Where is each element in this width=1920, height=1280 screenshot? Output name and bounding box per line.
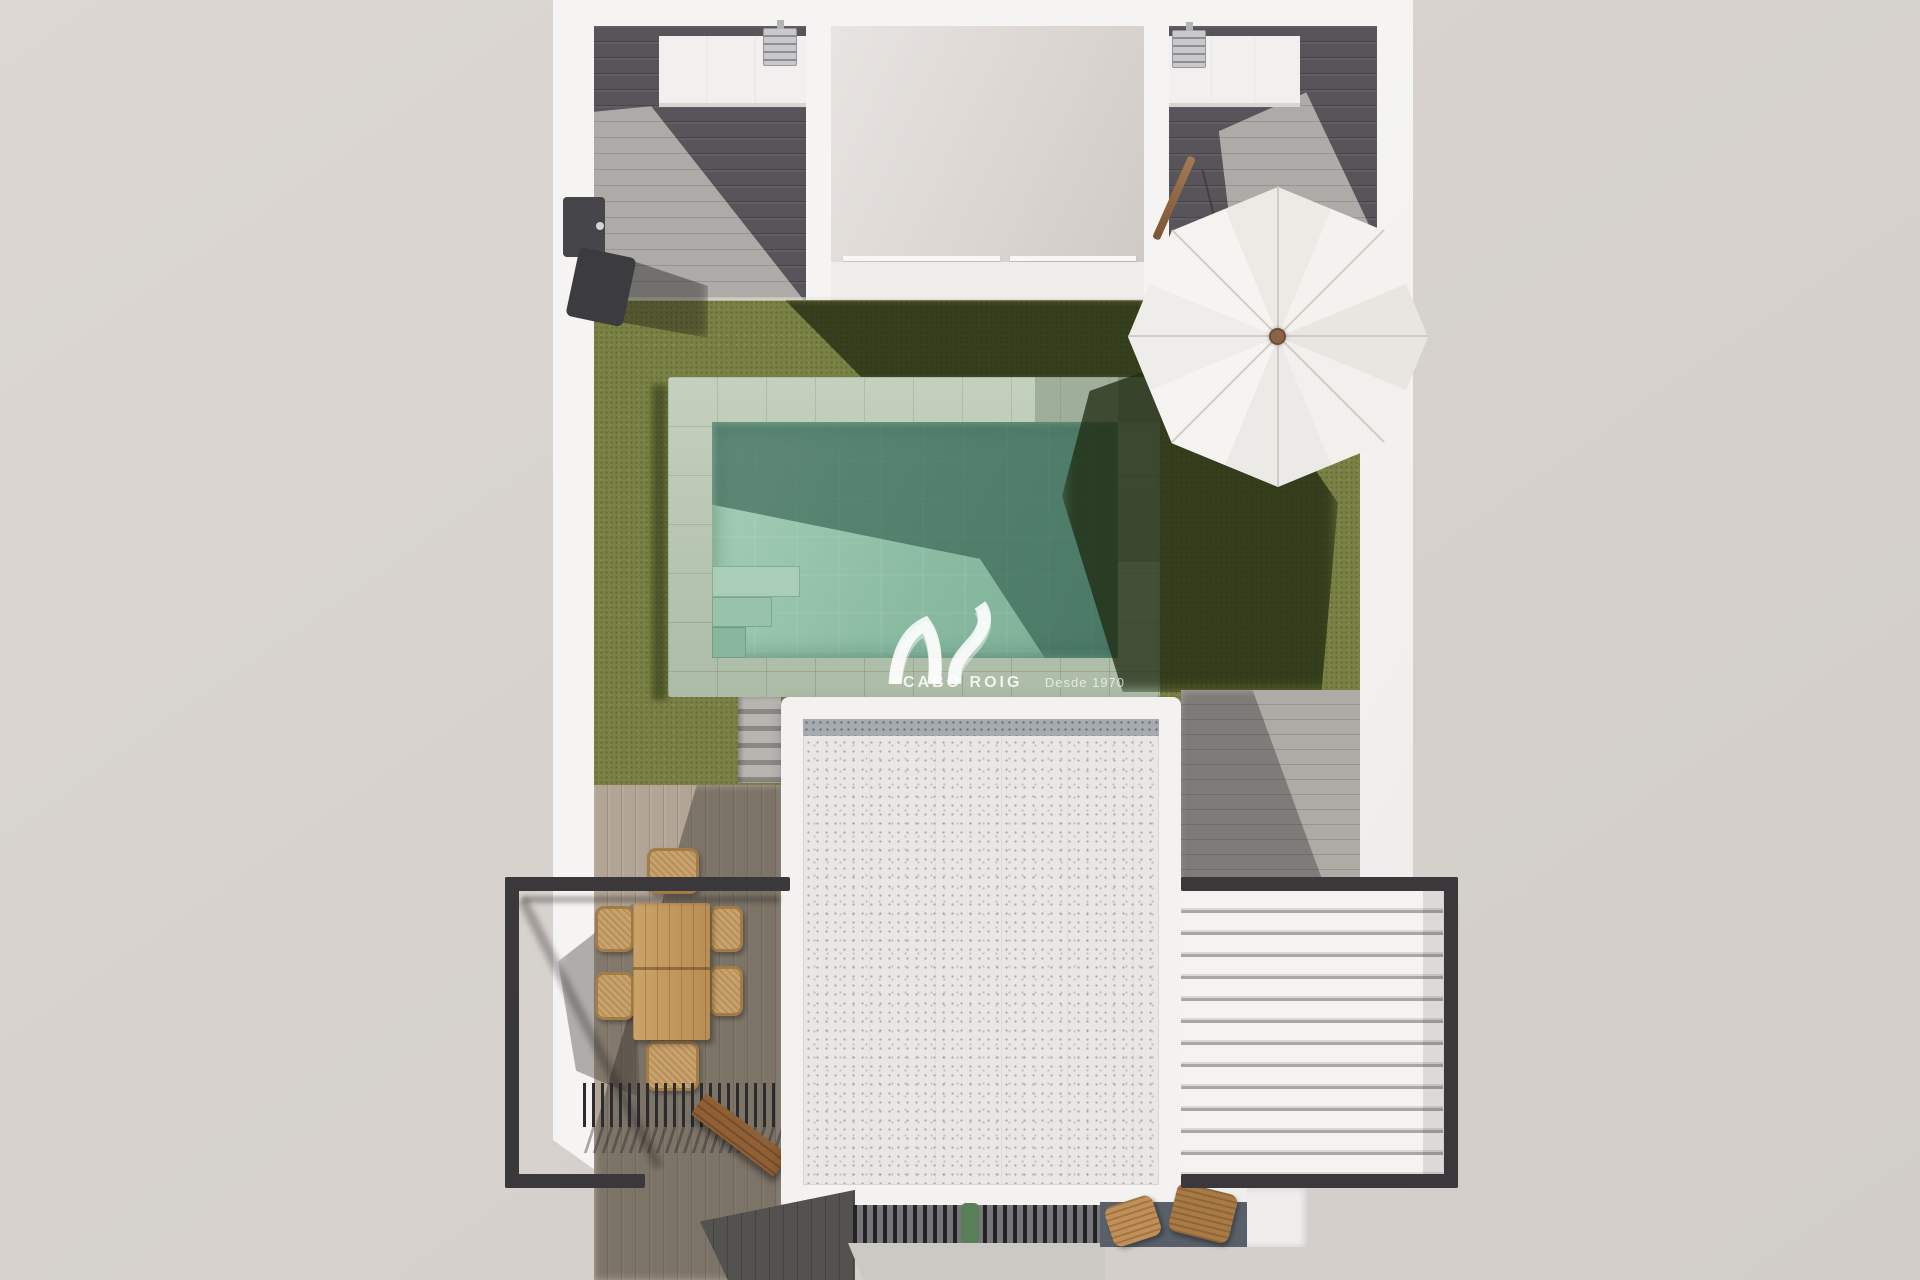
pool-edge-shadow: [652, 385, 667, 700]
louvered-pergola: [1181, 891, 1443, 1174]
pool-step: [712, 627, 746, 658]
dining-chair: [595, 972, 634, 1020]
glass-parapet-right: [1010, 256, 1136, 261]
railing-right: [1181, 1174, 1458, 1188]
railing-left: [505, 1174, 645, 1188]
garden-stairs: [738, 697, 781, 783]
table-seam: [633, 967, 710, 970]
ac-unit-icon: [763, 28, 797, 66]
glass-parapet-left: [843, 256, 1000, 261]
dining-chair: [709, 966, 743, 1016]
railing-shadow: [522, 896, 780, 903]
pool-step: [712, 597, 772, 627]
ac-unit-icon: [1172, 30, 1206, 68]
parasol-hub: [1269, 328, 1286, 345]
pool-step: [712, 566, 800, 597]
dining-chair: [709, 906, 743, 952]
potted-plant: [961, 1203, 979, 1245]
main-roof: [781, 697, 1181, 1207]
aerial-villa-render: CABO ROIG Desde 1970: [0, 0, 1920, 1280]
courtyard-terrace: [831, 26, 1144, 262]
dining-table: [633, 903, 710, 1040]
railing-right: [1444, 877, 1458, 1188]
wall-corner-block: [1247, 1188, 1310, 1247]
dining-chair: [595, 906, 634, 952]
railing-right: [1181, 877, 1458, 891]
roof-gray-band: [803, 719, 1159, 736]
roof-gravel-field: [803, 719, 1159, 1185]
concrete-apron: [848, 1243, 1105, 1280]
railing-left: [505, 877, 519, 1188]
shower-faucet-icon: [596, 222, 604, 230]
railing-left: [505, 877, 790, 891]
